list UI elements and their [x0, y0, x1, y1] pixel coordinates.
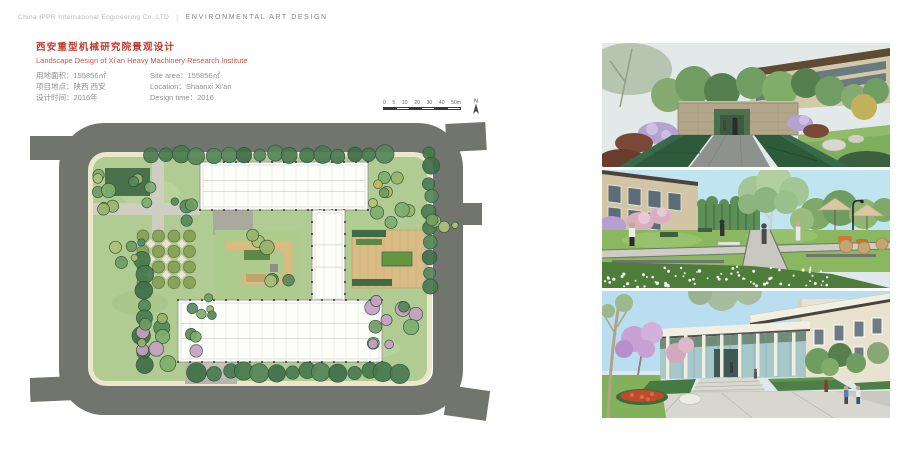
- project-title-zh: 西安重型机械研究院景观设计: [36, 39, 248, 53]
- master-plan: [30, 98, 490, 442]
- project-title-block: 西安重型机械研究院景观设计 Landscape Design of Xi'an …: [36, 39, 248, 103]
- rendering-entrance-view: [602, 291, 890, 418]
- field-site-area: 用地面积：155856㎡ Site area：155856㎡: [36, 70, 248, 81]
- header-divider: |: [176, 13, 178, 22]
- field-location: 项目地点：陕西 西安 Location：Shaanxi Xi'an: [36, 81, 248, 92]
- r1-stone-gateway: [678, 101, 798, 135]
- company-name: China IPPR International Engineering Co.…: [18, 14, 169, 21]
- plan-wood-deck: [352, 230, 428, 288]
- rendering-gateway-view: [602, 43, 890, 167]
- rendering-courtyard-view: [602, 170, 890, 288]
- sheet-header: China IPPR International Engineering Co.…: [18, 13, 328, 22]
- project-title-en: Landscape Design of Xi'an Heavy Machiner…: [36, 56, 248, 65]
- presentation-board: { "header": { "company": "China IPPR Int…: [0, 0, 900, 450]
- master-plan-drawing: [30, 98, 490, 442]
- department-title: ENVIRONMENTAL ART DESIGN: [186, 14, 328, 21]
